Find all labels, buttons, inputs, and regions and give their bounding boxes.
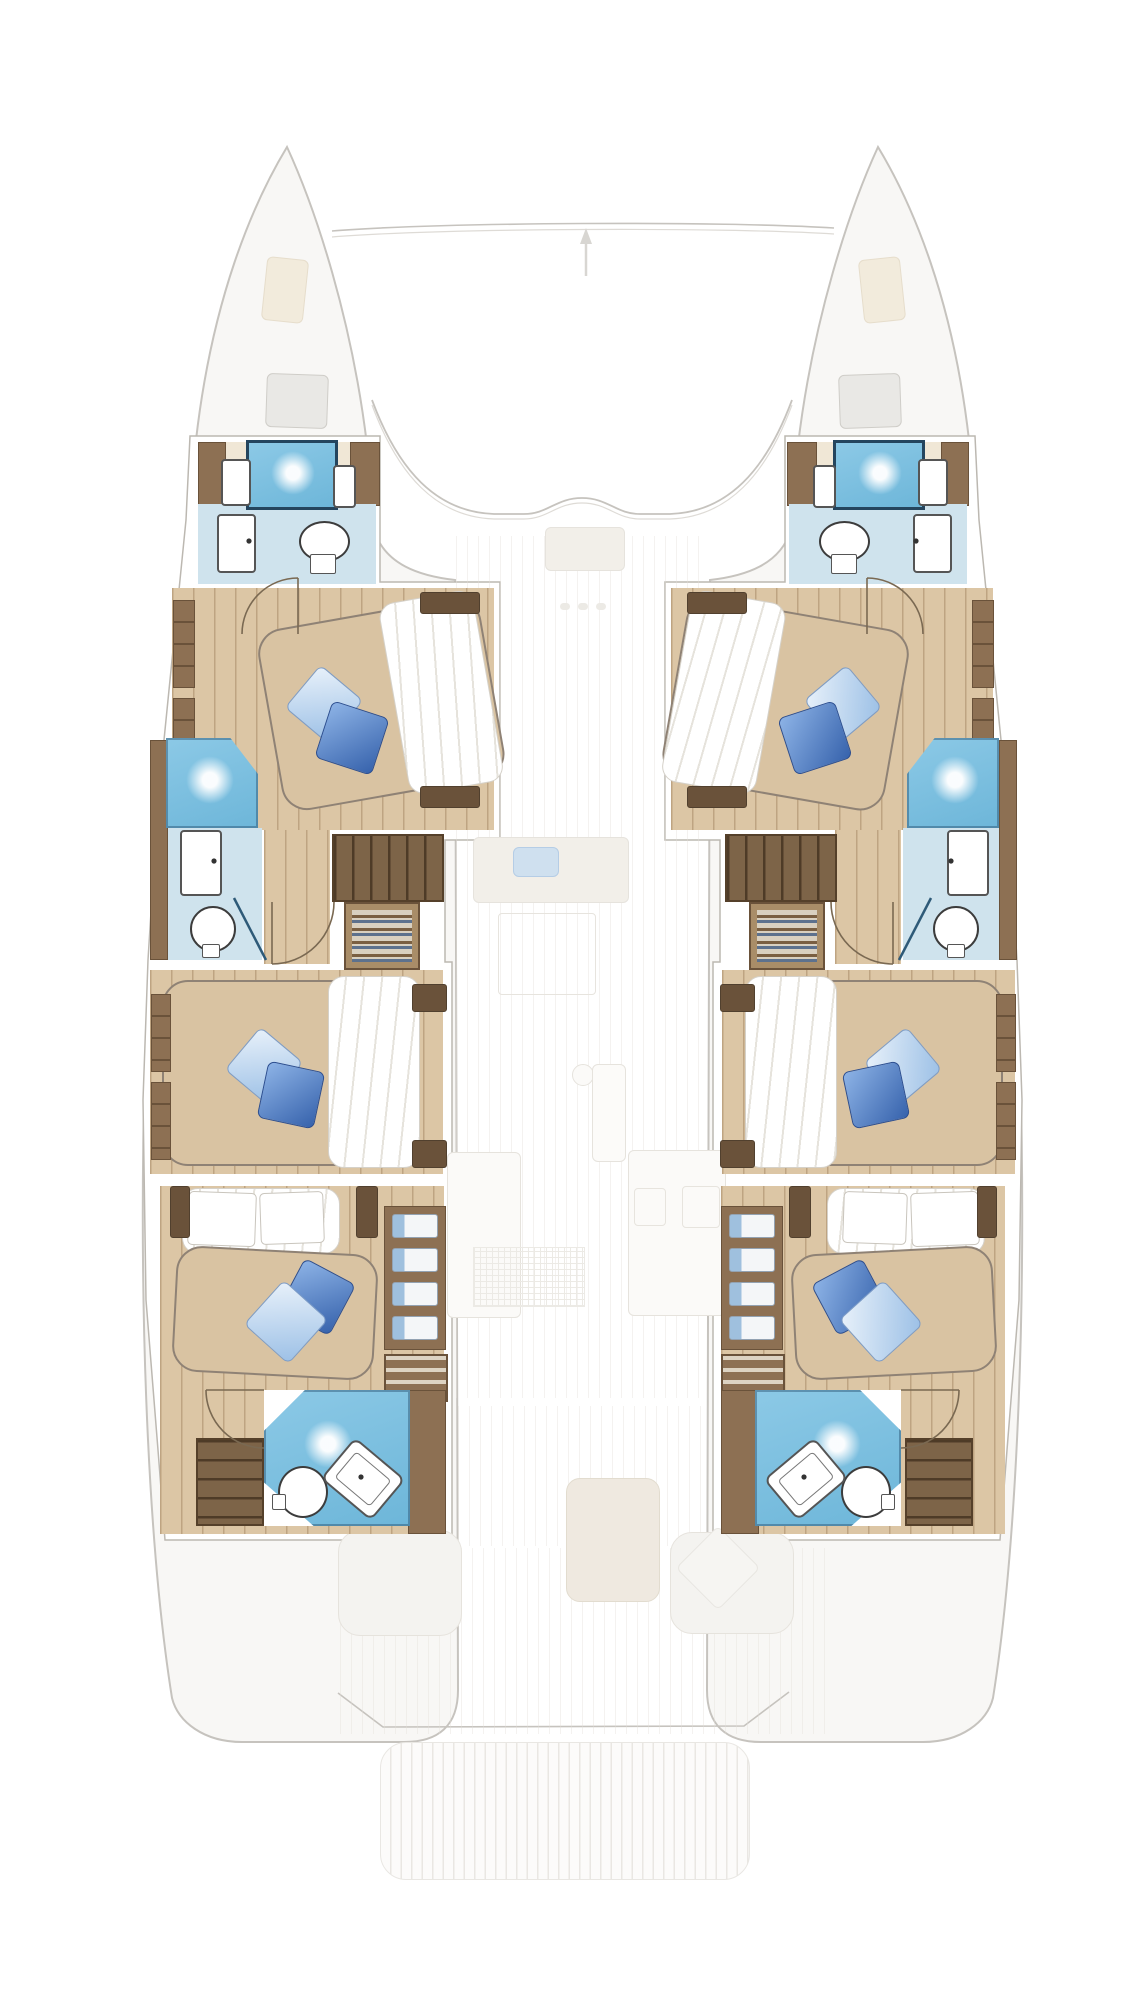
port-middle-door-arc bbox=[272, 902, 334, 964]
door-swing-layer bbox=[0, 0, 1125, 2000]
starboard-forward-door-arc bbox=[867, 578, 923, 634]
faucet-icon bbox=[246, 538, 251, 543]
faucet-icon bbox=[948, 858, 953, 863]
port-aft-door-arc bbox=[206, 1390, 264, 1448]
faucet-icon bbox=[358, 1474, 363, 1479]
starboard-aft-door-arc bbox=[901, 1390, 959, 1448]
starboard-middle-door-arc bbox=[831, 902, 893, 964]
faucet-icon bbox=[801, 1474, 806, 1479]
faucet-icon bbox=[211, 858, 216, 863]
faucet-icon bbox=[913, 538, 918, 543]
port-forward-door-arc bbox=[242, 578, 298, 634]
floor-plan-canvas bbox=[0, 0, 1125, 2000]
port-shower-glass bbox=[234, 898, 266, 960]
starboard-shower-glass bbox=[899, 898, 931, 960]
